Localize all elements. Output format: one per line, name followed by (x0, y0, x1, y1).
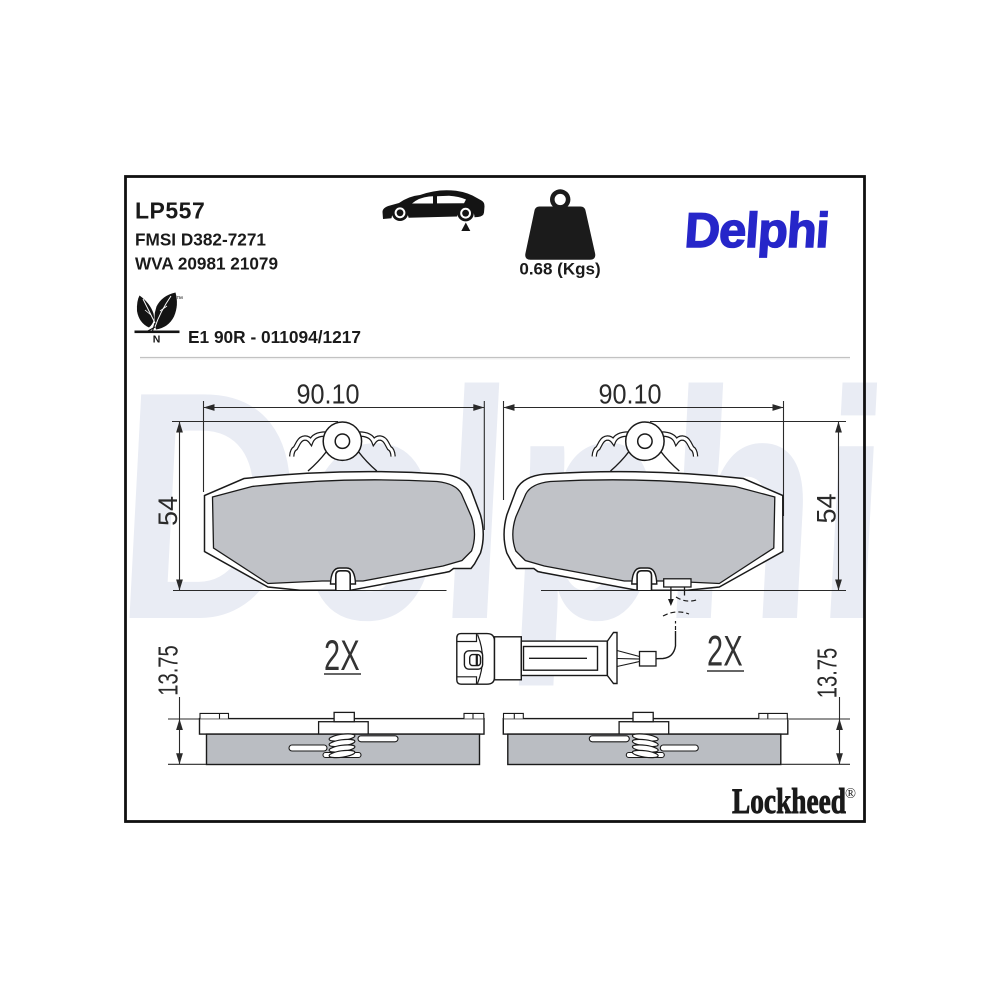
svg-text:90.10: 90.10 (296, 378, 359, 410)
svg-text:N: N (153, 334, 161, 346)
svg-text:54: 54 (153, 496, 183, 526)
svg-text:0.68 (Kgs): 0.68 (Kgs) (519, 260, 600, 279)
svg-text:Delphi: Delphi (683, 204, 830, 258)
svg-text:®: ® (845, 786, 856, 802)
svg-text:90.10: 90.10 (598, 378, 661, 410)
svg-text:WVA 20981 21079: WVA 20981 21079 (135, 254, 278, 274)
svg-text:13.75: 13.75 (153, 645, 184, 695)
svg-text:™: ™ (176, 296, 183, 303)
svg-text:E1 90R - 011094/1217: E1 90R - 011094/1217 (188, 327, 361, 347)
svg-text:FMSI D382-7271: FMSI D382-7271 (135, 230, 266, 250)
svg-text:2X: 2X (324, 631, 360, 679)
svg-text:13.75: 13.75 (812, 648, 843, 698)
svg-text:2X: 2X (707, 627, 743, 675)
svg-text:LP557: LP557 (135, 198, 205, 224)
svg-text:Lockheed: Lockheed (732, 781, 846, 821)
svg-text:54: 54 (812, 493, 842, 523)
